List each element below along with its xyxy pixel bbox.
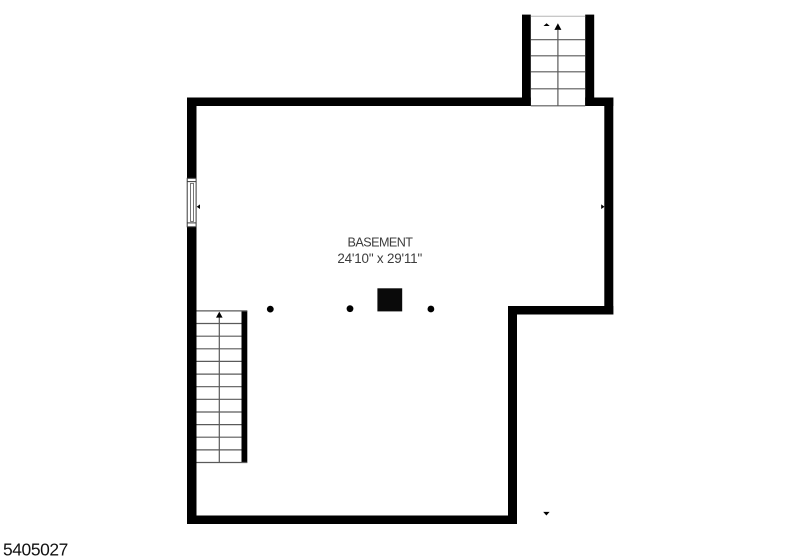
- svg-text:BASEMENT: BASEMENT: [348, 235, 414, 249]
- svg-text:5405027: 5405027: [3, 539, 68, 559]
- svg-text:24'10" x 29'11": 24'10" x 29'11": [337, 251, 422, 266]
